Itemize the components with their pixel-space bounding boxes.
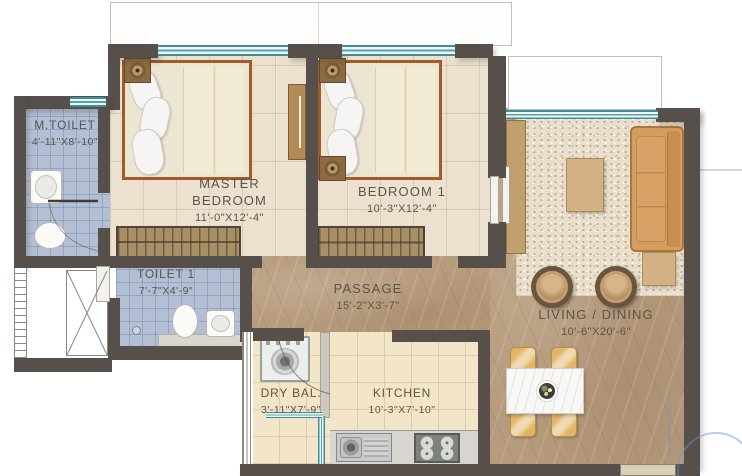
sink-bowl	[340, 437, 362, 458]
nightstand	[319, 156, 346, 181]
ladder-hatch	[14, 268, 27, 358]
wall-segment	[392, 330, 490, 342]
room-name: M.TOILET	[22, 118, 108, 134]
coffee-table	[566, 158, 604, 212]
wall-segment	[488, 56, 506, 178]
room-dims: 10'-3"X7'-10"	[350, 404, 454, 416]
wall-segment	[306, 256, 432, 268]
room-name: PASSAGE	[308, 281, 428, 298]
window	[342, 45, 455, 56]
kitchen-sink	[336, 433, 392, 462]
room-label-living-dining: LIVING / DINING 10'-6"X20'-6"	[515, 307, 677, 338]
room-label-passage: PASSAGE 15'-2"X3'-7"	[308, 281, 428, 312]
duvet	[183, 67, 245, 173]
plant-centerpiece	[539, 383, 555, 399]
room-label-m-toilet: M.TOILET 4'-11"X8'-10"	[22, 118, 108, 148]
room-name: BEDROOM 1	[328, 184, 476, 201]
room-label-dry-balcony: DRY BAL. 3'-11"X7'-9"	[246, 386, 336, 416]
sofa-seat-cushions	[636, 136, 666, 242]
wall-segment	[306, 56, 318, 268]
wall-segment	[684, 108, 700, 468]
cupboard	[288, 84, 306, 160]
room-name: LIVING / DINING	[515, 307, 677, 324]
room-name: KITCHEN	[350, 386, 454, 402]
stove	[414, 433, 460, 463]
lounge-chair	[595, 266, 637, 308]
reference-line	[700, 169, 742, 171]
window	[506, 110, 658, 119]
toilet-wc	[172, 304, 198, 338]
room-name: TOILET 1	[116, 267, 216, 283]
duvet	[375, 67, 435, 173]
chajja-divider-line	[318, 3, 319, 45]
nightstand	[124, 58, 151, 83]
room-dims: 10'-3"X12'-4"	[328, 203, 476, 215]
room-dims: 10'-6"X20'-6"	[515, 326, 677, 338]
chajja-projection-living	[508, 56, 662, 110]
nightstand	[319, 58, 346, 83]
room-dims: 7'-7"X4'-9"	[116, 285, 216, 297]
wall-segment	[488, 222, 506, 268]
room-label-bedroom1: BEDROOM 1 10'-3"X12'-4"	[328, 184, 476, 215]
toilet-wc	[34, 222, 66, 249]
wall-segment	[240, 464, 620, 476]
wall-segment	[14, 358, 112, 372]
bedroom1-wardrobe	[317, 226, 425, 259]
dining-chair	[551, 411, 577, 437]
door-leaf	[96, 266, 110, 302]
room-label-master-bedroom: MASTER BEDROOM 11'-0"X12'-4"	[172, 176, 287, 224]
entrance-sill	[620, 464, 676, 476]
wall-segment	[478, 330, 490, 464]
dining-chair	[510, 411, 536, 437]
room-name: MASTER BEDROOM	[172, 176, 287, 210]
washbasin	[206, 310, 235, 337]
washing-machine	[260, 336, 310, 382]
room-dims: 11'-0"X12'-4"	[172, 212, 287, 224]
window	[70, 97, 106, 107]
side-table	[642, 252, 676, 286]
glass-partition	[318, 416, 325, 464]
lounge-chair	[531, 266, 573, 308]
room-dims: 3'-11"X7'-9"	[246, 404, 336, 416]
shower-head	[132, 326, 141, 335]
window	[158, 45, 288, 56]
wall-segment	[108, 346, 252, 360]
chajja-projection-top	[110, 2, 512, 46]
sofa	[630, 126, 684, 252]
door-frame	[668, 394, 671, 456]
door-leaf	[490, 176, 499, 224]
sink-drainboard	[364, 438, 388, 457]
room-label-kitchen: KITCHEN 10'-3"X7'-10"	[350, 386, 454, 416]
master-wardrobe	[116, 226, 241, 258]
room-name: DRY BAL.	[246, 386, 336, 402]
sofa-backrest	[667, 131, 680, 247]
room-dims: 15'-2"X3'-7"	[308, 300, 428, 312]
room-dims: 4'-11"X8'-10"	[22, 136, 108, 148]
floor-plan: M.TOILET 4'-11"X8'-10" MASTER BEDROOM 11…	[0, 0, 742, 476]
washbasin	[30, 170, 62, 204]
room-label-toilet1: TOILET 1 7'-7"X4'-9"	[116, 267, 216, 297]
